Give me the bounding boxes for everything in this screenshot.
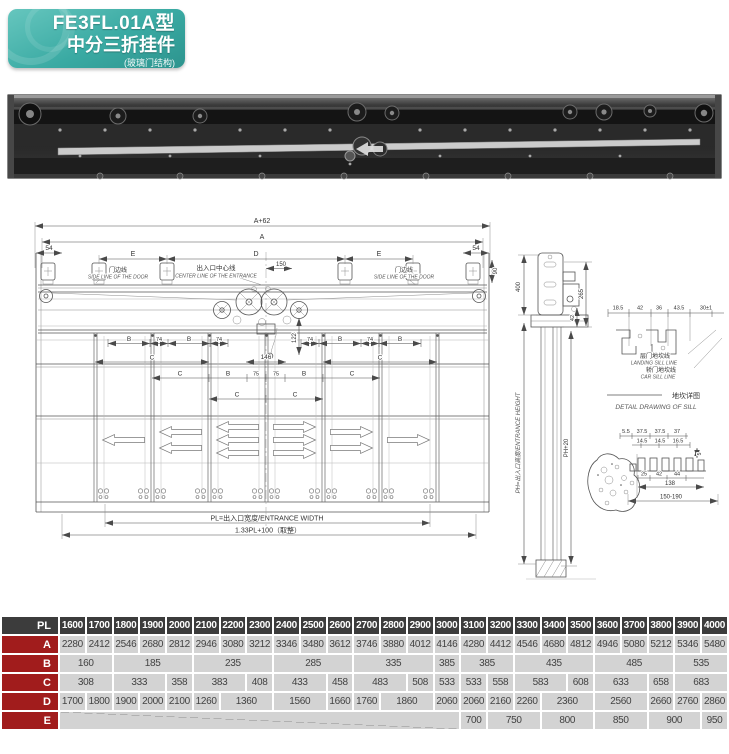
- column-header: 2900: [408, 617, 433, 634]
- row-header: E: [2, 712, 58, 729]
- table-cell: 5346: [675, 636, 700, 653]
- landing-sill-line-cn: 层门地坎线: [640, 352, 670, 360]
- sill-dim-30: 30±1: [700, 306, 712, 312]
- table-cell: 1760: [354, 693, 379, 710]
- column-header: 3500: [568, 617, 593, 634]
- sill-dim-36: 36: [656, 306, 662, 312]
- column-header: 2200: [221, 617, 246, 634]
- table-cell: 2760: [675, 693, 700, 710]
- sill2-44: 44: [674, 472, 680, 478]
- sill-detail: [607, 309, 724, 395]
- table-cell: 4946: [595, 636, 620, 653]
- table-cell: 608: [568, 674, 593, 691]
- entrance-height-label: PH=出入口高度/ENTRANCE HEIGHT: [514, 391, 522, 493]
- table-cell: 4680: [542, 636, 567, 653]
- dimension-table: PL16001700180019002000210022002300240025…: [0, 615, 729, 731]
- dim-label-74-4: 74: [367, 337, 373, 343]
- dim-label-74-2: 74: [216, 337, 222, 343]
- dim-label-74-1: 74: [156, 337, 162, 343]
- sill-dim-43-5: 43.5: [674, 306, 685, 312]
- dim-label-54-right: 54: [472, 245, 480, 252]
- track-assembly: [38, 285, 487, 333]
- dim-label-122: 122: [292, 332, 298, 343]
- table-cell: 1800: [87, 693, 112, 710]
- table-cell: 4546: [515, 636, 540, 653]
- table-cell: 5480: [702, 636, 727, 653]
- table-cell: 5080: [622, 636, 647, 653]
- table-cell: 1660: [328, 693, 353, 710]
- column-header: 2300: [247, 617, 272, 634]
- right-direction-arrow: [388, 435, 430, 446]
- table-cell: 2000: [140, 693, 165, 710]
- table-cell: 408: [247, 674, 272, 691]
- table-cell: 1260: [194, 693, 219, 710]
- table-cell: 285: [274, 655, 352, 672]
- table-cell: 2546: [114, 636, 139, 653]
- dim-label-b6: B: [302, 371, 306, 378]
- sill2-37-5a: 37.5: [637, 429, 648, 435]
- table-cell: 533: [435, 674, 460, 691]
- table-cell: 700: [461, 712, 486, 729]
- table-cell: 558: [488, 674, 513, 691]
- table-cell: 1900: [114, 693, 139, 710]
- left-direction-arrow: [217, 435, 259, 446]
- column-header: 3800: [649, 617, 674, 634]
- column-header: 1600: [60, 617, 85, 634]
- dim-label-c2: C: [378, 355, 383, 362]
- row-header: D: [2, 693, 58, 710]
- table-cell: 750: [488, 712, 540, 729]
- column-header: 3000: [435, 617, 460, 634]
- table-cell: 485: [595, 655, 673, 672]
- table-cell: 683: [675, 674, 727, 691]
- table-cell: 3880: [381, 636, 406, 653]
- side-line-label-right-en: SIDE LINE OF THE DOOR: [374, 275, 435, 281]
- table-header-row: PL16001700180019002000210022002300240025…: [2, 617, 727, 634]
- table-cell: 4146: [435, 636, 460, 653]
- right-direction-arrow: [274, 448, 316, 459]
- column-header: 3600: [595, 617, 620, 634]
- dim-label-54-left: 54: [45, 245, 53, 252]
- landing-sill-line-en: LANDING SILL LINE: [631, 361, 678, 367]
- datasheet-page: FE3FL.01A型 中分三折挂件 (玻璃门结构): [0, 0, 729, 754]
- column-header: 3400: [542, 617, 567, 634]
- table-row: D170018001900200021001260136015601660176…: [2, 693, 727, 710]
- column-header: 2000: [167, 617, 192, 634]
- side-line-label-left-en: SIDE LINE OF THE DOOR: [88, 275, 149, 281]
- center-line-label-en: CENTER LINE OF THE ENTRANCE: [175, 274, 257, 280]
- dim-label-e-right: E: [377, 251, 382, 258]
- sill-title-cn: 地坎详图: [672, 391, 700, 400]
- column-header: 2800: [381, 617, 406, 634]
- table-cell: 3346: [274, 636, 299, 653]
- table-cell: 2160: [488, 693, 513, 710]
- column-header: 3200: [488, 617, 513, 634]
- right-direction-arrow: [331, 427, 373, 438]
- column-header: 3700: [622, 617, 647, 634]
- table-cell: 2360: [542, 693, 594, 710]
- table-cell: 900: [649, 712, 701, 729]
- dim-label-a: A: [260, 234, 265, 241]
- right-direction-arrow: [274, 435, 316, 446]
- table-cell: 535: [675, 655, 727, 672]
- sill-dim-42: 42: [637, 306, 643, 312]
- side-line-label-right-cn: 门边线: [395, 266, 413, 274]
- dim-label-a62: A+62: [254, 218, 271, 225]
- table-cell: 3612: [328, 636, 353, 653]
- left-direction-arrow: [103, 435, 145, 446]
- table-cell: 2860: [702, 693, 727, 710]
- table-cell: 308: [60, 674, 112, 691]
- table-cell: 3746: [354, 636, 379, 653]
- column-header: 2500: [301, 617, 326, 634]
- table-cell: 3080: [221, 636, 246, 653]
- row-header: C: [2, 674, 58, 691]
- dim-label-d: D: [253, 251, 258, 258]
- sill2-5-5: 5.5: [622, 429, 630, 435]
- dim-label-b4: B: [398, 336, 402, 343]
- left-direction-arrow: [217, 448, 259, 459]
- dim-label-e-left: E: [131, 251, 136, 258]
- drive-gears: [214, 252, 308, 526]
- column-header: 3900: [675, 617, 700, 634]
- table-cell: 950: [702, 712, 727, 729]
- table-cell: 1560: [274, 693, 326, 710]
- table-cell: 533: [461, 674, 486, 691]
- sill2-5: 5: [697, 452, 703, 455]
- table-cell: 4412: [488, 636, 513, 653]
- dim-label-75-left: 75: [253, 372, 259, 378]
- table-cell: 483: [354, 674, 406, 691]
- entrance-width-label: PL=出入口宽度/ENTRANCE WIDTH: [211, 514, 324, 523]
- table-cell: [60, 712, 459, 729]
- mechanism-photo: [0, 86, 729, 190]
- column-header: 2600: [328, 617, 353, 634]
- dim-label-150: 150: [276, 262, 287, 268]
- sill-dim-18-5: 18.5: [613, 306, 624, 312]
- column-header: 2100: [194, 617, 219, 634]
- table-cell: 2100: [167, 693, 192, 710]
- dim-label-90: 90: [493, 267, 499, 274]
- column-header: 1800: [114, 617, 139, 634]
- table-cell: 433: [274, 674, 326, 691]
- table-cell: 5212: [649, 636, 674, 653]
- dim-label-c1: C: [150, 355, 155, 362]
- left-direction-arrow: [160, 443, 202, 454]
- side-line-label-left-cn: 门边线: [109, 266, 127, 274]
- table-cell: 3212: [247, 636, 272, 653]
- table-cell: 385: [435, 655, 460, 672]
- table-cell: 2412: [87, 636, 112, 653]
- column-header: 1700: [87, 617, 112, 634]
- badge-subtitle: (玻璃门结构): [8, 56, 175, 68]
- dim-label-b3: B: [338, 336, 342, 343]
- table-cell: 2680: [140, 636, 165, 653]
- table-cell: 4812: [568, 636, 593, 653]
- table-cell: 160: [60, 655, 112, 672]
- dim-label-b1: B: [127, 336, 131, 343]
- table-cell: 2560: [595, 693, 647, 710]
- sill2-14-5a: 14.5: [637, 439, 648, 445]
- dim-label-146: 146: [261, 354, 272, 361]
- table-cell: 185: [114, 655, 192, 672]
- hanger-brackets: [41, 263, 480, 284]
- sill2-range: 150-190: [660, 495, 683, 501]
- table-cell: 2260: [515, 693, 540, 710]
- dim-label-75-right: 75: [273, 372, 279, 378]
- table-cell: 1360: [221, 693, 273, 710]
- column-header: 1900: [140, 617, 165, 634]
- dim-label-400: 400: [516, 281, 522, 292]
- table-cell: 2060: [435, 693, 460, 710]
- dim-label-ph20: PH+20: [564, 438, 570, 457]
- table-cell: 2060: [461, 693, 486, 710]
- column-header: 2400: [274, 617, 299, 634]
- table-cell: 458: [328, 674, 353, 691]
- row-header: A: [2, 636, 58, 653]
- sill2-42: 42: [656, 472, 662, 478]
- table-cell: 508: [408, 674, 433, 691]
- table-cell: 435: [515, 655, 593, 672]
- right-direction-arrow: [274, 422, 316, 433]
- sill2-25: 25: [641, 472, 647, 478]
- dim-label-c5: C: [235, 392, 240, 399]
- dim-label-c4: C: [350, 371, 355, 378]
- sill2-37-5b: 37.5: [655, 429, 666, 435]
- table-cell: 335: [354, 655, 432, 672]
- table-cell: 1860: [381, 693, 433, 710]
- sill-section-detail: [588, 433, 718, 511]
- table-row: C308333358383408433458483508533533558583…: [2, 674, 727, 691]
- dim-label-265: 265: [579, 288, 585, 299]
- formula-label: 1.33PL+100（取整）: [235, 526, 301, 535]
- table-cell: 583: [515, 674, 567, 691]
- technical-drawing: A+62 A 54 54 E D E 150 90 门边线 SIDE LINE …: [0, 196, 729, 614]
- car-sill-line-cn: 轿门地坎线: [646, 366, 676, 374]
- table-cell: 4280: [461, 636, 486, 653]
- table-cell: 2812: [167, 636, 192, 653]
- table-cell: 850: [595, 712, 647, 729]
- dim-label-b2: B: [187, 336, 191, 343]
- table-cell: 2280: [60, 636, 85, 653]
- product-badge: FE3FL.01A型 中分三折挂件 (玻璃门结构): [8, 9, 185, 68]
- table-cell: 658: [649, 674, 674, 691]
- row-header: B: [2, 655, 58, 672]
- table-row: B160185235285335385385435485535: [2, 655, 727, 672]
- dim-label-74-3: 74: [307, 337, 313, 343]
- dim-label-c3: C: [178, 371, 183, 378]
- table-row: E700750800850900950: [2, 712, 727, 729]
- table-cell: 633: [595, 674, 647, 691]
- sill2-138: 138: [665, 481, 676, 487]
- column-header: 3100: [461, 617, 486, 634]
- sill2-37: 37: [674, 429, 680, 435]
- table-cell: 333: [114, 674, 166, 691]
- table-cell: 3480: [301, 636, 326, 653]
- column-header: 4000: [702, 617, 727, 634]
- table-row: A228024122546268028122946308032123346348…: [2, 636, 727, 653]
- right-direction-arrow: [331, 443, 373, 454]
- column-header: 2700: [354, 617, 379, 634]
- sill2-16-5: 16.5: [673, 439, 684, 445]
- dim-label-c6: C: [293, 392, 298, 399]
- column-header: 3300: [515, 617, 540, 634]
- sill-title-en: DETAIL DRAWING OF SILL: [615, 404, 697, 411]
- table-cell: 235: [194, 655, 272, 672]
- table-cell: 2660: [649, 693, 674, 710]
- sill2-14-5b: 14.5: [655, 439, 666, 445]
- table-cell: 4012: [408, 636, 433, 653]
- dim-label-b5: B: [226, 371, 230, 378]
- left-direction-arrow: [160, 427, 202, 438]
- table-cell: 800: [542, 712, 594, 729]
- center-line-label-cn: 出入口中心线: [197, 263, 237, 272]
- table-cell: 385: [461, 655, 513, 672]
- left-direction-arrow: [217, 422, 259, 433]
- corner-header: PL: [2, 617, 58, 634]
- table-cell: 1700: [60, 693, 85, 710]
- side-view: [518, 253, 596, 579]
- table-cell: 383: [194, 674, 246, 691]
- table-cell: 358: [167, 674, 192, 691]
- table-cell: 2946: [194, 636, 219, 653]
- car-sill-line-en: CAR SILL LINE: [641, 375, 676, 381]
- dim-label-42: 42: [570, 315, 576, 321]
